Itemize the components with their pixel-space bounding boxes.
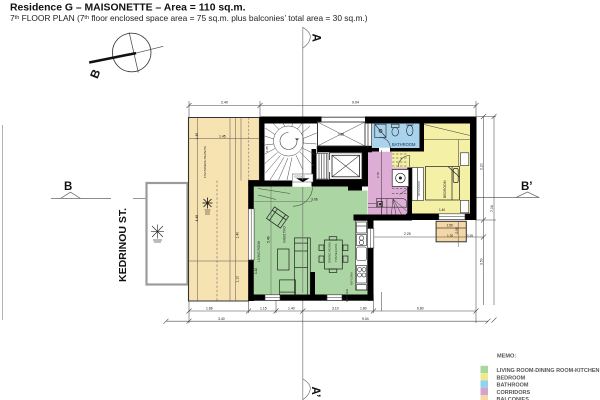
svg-text:0.35: 0.35 — [467, 234, 473, 238]
svg-text:9.04: 9.04 — [362, 317, 369, 321]
svg-text:DINING ROOM: DINING ROOM — [328, 242, 332, 263]
svg-text:A: A — [309, 34, 321, 42]
svg-text:LIVING ROOM-DINING ROOM-KITCHE: LIVING ROOM-DINING ROOM-KITCHEN — [497, 368, 600, 374]
svg-text:1.20: 1.20 — [447, 234, 453, 238]
svg-text:1.80: 1.80 — [360, 307, 367, 311]
svg-text:ΚΑΘΙΣΤΙΚΟ: ΚΑΘΙΣΤΙΚΟ — [283, 226, 287, 243]
svg-text:4.48: 4.48 — [195, 215, 199, 222]
svg-text:2.40: 2.40 — [221, 101, 228, 105]
svg-text:ΚΟΥΖΙΝΑ: ΚΟΥΖΙΝΑ — [350, 272, 354, 285]
svg-text:1.85: 1.85 — [265, 146, 269, 152]
svg-text:Residence G – MAISONETTE – Are: Residence G – MAISONETTE – Area = 110 sq… — [10, 3, 246, 14]
svg-text:1.45: 1.45 — [219, 135, 226, 139]
svg-text:3.50: 3.50 — [479, 258, 483, 265]
svg-text:KITCHEN: KITCHEN — [345, 289, 349, 302]
svg-text:5.46: 5.46 — [267, 236, 271, 243]
svg-text:BATHROOM: BATHROOM — [497, 383, 529, 389]
svg-text:0.90: 0.90 — [455, 227, 459, 233]
svg-text:9.04: 9.04 — [352, 101, 359, 105]
svg-text:1.85: 1.85 — [338, 133, 344, 137]
svg-text:1.86: 1.86 — [206, 307, 213, 311]
svg-text:LIVING ROOM: LIVING ROOM — [257, 240, 261, 262]
svg-text:3.10: 3.10 — [332, 307, 339, 311]
svg-text:1.10: 1.10 — [254, 268, 258, 274]
svg-text:2.70: 2.70 — [376, 172, 380, 178]
svg-text:BEDROOM: BEDROOM — [497, 375, 526, 381]
svg-text:1.10: 1.10 — [236, 276, 240, 283]
svg-text:B: B — [64, 181, 72, 193]
svg-text:7.04: 7.04 — [490, 205, 494, 212]
svg-text:BATHROOM: BATHROOM — [392, 142, 416, 147]
svg-text:1.50: 1.50 — [447, 224, 453, 228]
svg-text:ΝΤΟΥΛΑΠΑ: ΝΤΟΥΛΑΠΑ — [417, 181, 421, 196]
svg-text:1.40: 1.40 — [236, 232, 240, 239]
svg-text:2.20: 2.20 — [479, 163, 483, 170]
svg-text:KEDRINOU ST.: KEDRINOU ST. — [117, 208, 129, 282]
svg-text:2.25: 2.25 — [404, 232, 411, 236]
svg-text:ΤΡΑΠΕΖΑΡΙΑ: ΤΡΑΠΕΖΑΡΙΑ — [334, 244, 338, 262]
svg-text:ΣΤΕΓΑΣΜΕΝΗ ΒΕΡΑΝΤΑ: ΣΤΕΓΑΣΜΕΝΗ ΒΕΡΑΝΤΑ — [203, 146, 207, 178]
svg-text:3.40: 3.40 — [218, 317, 225, 321]
svg-text:1.40: 1.40 — [288, 307, 295, 311]
svg-text:1.15: 1.15 — [260, 307, 267, 311]
svg-text:ΕΙΣΟΔΟΣ: ΕΙΣΟΔΟΣ — [295, 175, 306, 178]
svg-text:BEDROOM: BEDROOM — [443, 180, 447, 198]
svg-text:1.40: 1.40 — [439, 208, 445, 212]
svg-text:3.06: 3.06 — [311, 198, 318, 202]
svg-text:6.80: 6.80 — [417, 307, 424, 311]
svg-text:MEMO:: MEMO: — [497, 354, 516, 360]
svg-text:1.45: 1.45 — [195, 133, 199, 140]
svg-text:B’: B’ — [521, 181, 533, 193]
svg-text:7th FLOOR PLAN (7th floor encl: 7th FLOOR PLAN (7th floor enclosed space… — [10, 13, 368, 23]
svg-text:A’: A’ — [309, 387, 321, 398]
svg-text:CORRIDORS: CORRIDORS — [497, 390, 531, 396]
